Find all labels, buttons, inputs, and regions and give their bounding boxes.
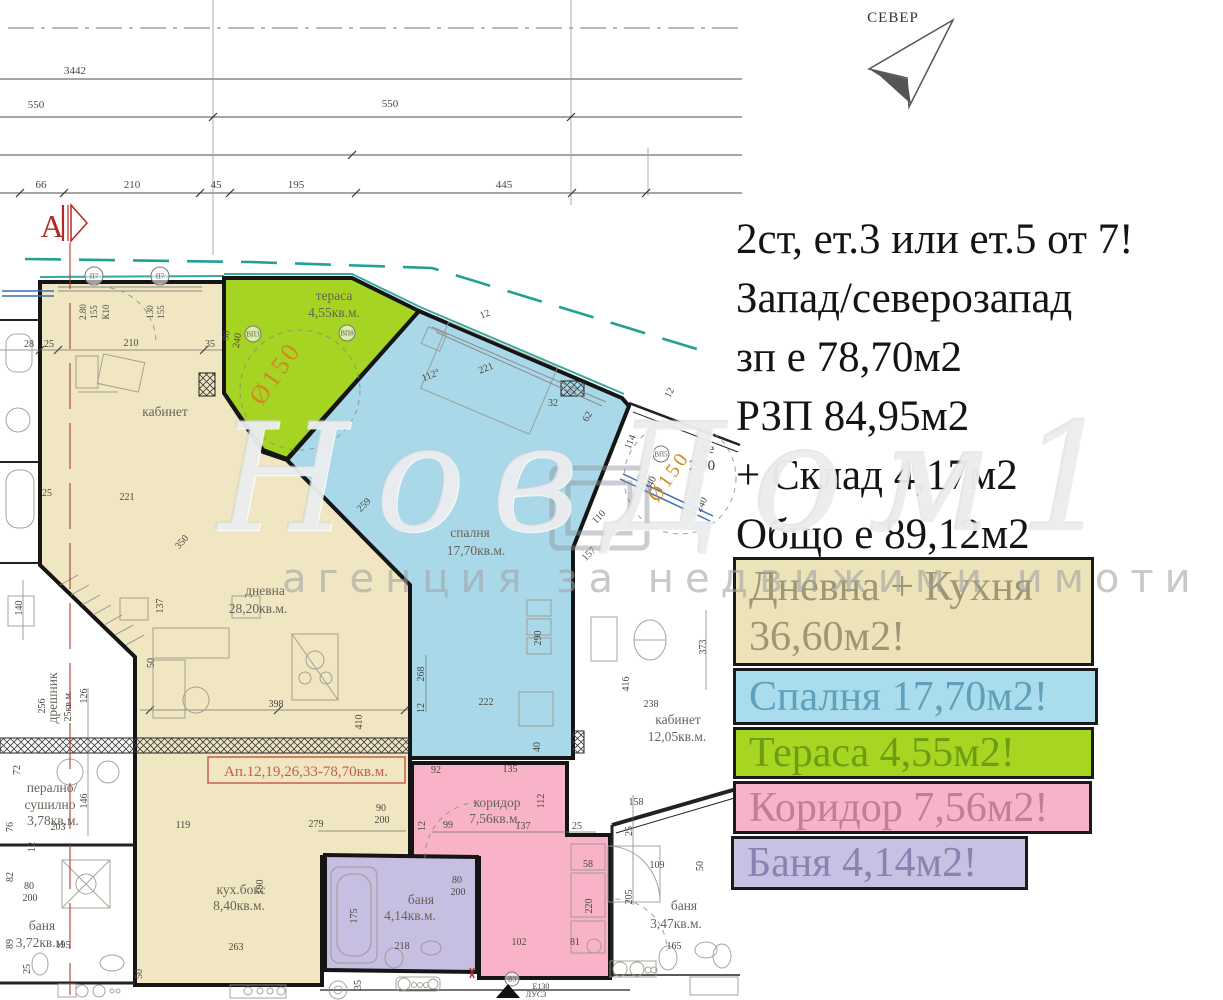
dimension-label: 76 <box>5 822 16 832</box>
section-marker <box>63 205 87 241</box>
hatched-wall <box>572 731 584 753</box>
info-line: Запад/северозапад <box>736 269 1133 328</box>
dimension-label: 119 <box>176 820 191 831</box>
dimension-label: 416 <box>621 677 632 692</box>
dimension-label: 25 <box>624 826 635 836</box>
listing-info: 2ст, ет.3 или ет.5 от 7!Запад/северозапа… <box>736 210 1133 564</box>
dimension-label: 200 <box>451 887 466 898</box>
dimension-label: 165 <box>667 941 682 952</box>
dimension-label: 445 <box>496 179 513 191</box>
circled-marker-label: ВП8 <box>340 330 354 338</box>
dimension-label: 112 <box>536 794 547 809</box>
circled-marker-label: П7 <box>156 273 165 281</box>
dimension-label: 155 <box>156 305 166 319</box>
dimension-label: 25кв.м. <box>63 691 74 722</box>
north-label: СЕВЕР <box>867 10 919 26</box>
room-label: кух.бокс <box>216 882 265 897</box>
info-line: РЗП 84,95м2 <box>736 387 1133 446</box>
dimension-label: 114 <box>623 433 639 451</box>
dimension-label: 109 <box>650 860 665 871</box>
legend-box-living-kitchen: Дневна + Кухня36,60м2! <box>733 557 1094 666</box>
circled-marker-label: П7 <box>90 273 99 281</box>
dimension-label: 2.80 <box>78 304 88 320</box>
dimension-label: 137 <box>155 599 166 614</box>
north-arrow <box>869 20 953 107</box>
dimension-label: 290 <box>533 631 544 646</box>
dimension-label: 210 <box>124 338 139 349</box>
dimension-label: 222 <box>479 697 494 708</box>
circled-marker-label: ВП3 <box>246 331 260 339</box>
info-line: + Склад 4,17м2 <box>736 446 1133 505</box>
dimension-label: 12 <box>663 386 677 400</box>
legend-label: 36,60м2! <box>736 612 1091 662</box>
apartment-id-label: Ап.12,19,26,33-78,70кв.м. <box>224 764 388 780</box>
dimension-label: 80 <box>24 881 34 892</box>
dimension-label: 66 <box>36 179 48 191</box>
section-marker-letter: А <box>40 208 63 244</box>
dimension-label: 130 <box>145 305 155 319</box>
dimension-label: 90 <box>376 803 386 814</box>
dimension-label: 90 <box>220 330 233 342</box>
dimension-label: 3442 <box>64 65 86 77</box>
dimension-label: 550 <box>382 98 399 110</box>
room-label: 3,78кв.м. <box>27 813 79 828</box>
legend-box-bath: Баня 4,14м2! <box>731 836 1028 890</box>
legend-label: Дневна + Кухня <box>736 562 1091 612</box>
dimension-label: 25 <box>42 488 52 499</box>
dimension-label: 155 <box>89 305 99 319</box>
room-label: 28,20кв.м. <box>229 601 288 616</box>
info-line: 2ст, ет.3 или ет.5 от 7! <box>736 210 1133 269</box>
room-label: 3,47кв.м. <box>650 916 702 931</box>
dimension-label: К10 <box>101 304 111 320</box>
room-label: сушилно <box>25 797 76 812</box>
room-label: тераса <box>316 288 353 303</box>
dimension-label: 81 <box>570 937 580 948</box>
legend-box-corridor: Коридор 7,56м2! <box>733 781 1092 834</box>
room-label: баня <box>671 898 697 913</box>
dimension-label: 195 <box>288 179 305 191</box>
dimension-label: 158 <box>629 797 644 808</box>
dimension-label: 50 <box>146 658 157 668</box>
hatched-wall <box>561 381 584 396</box>
dimension-label: 50 <box>695 861 706 871</box>
dimension-label: 25 <box>572 821 582 832</box>
dimension-label: 35 <box>205 339 215 350</box>
legend-label: Спалня 17,70м2! <box>736 672 1095 722</box>
legend-box-bedroom: Спалня 17,70м2! <box>733 668 1098 725</box>
dimension-label: 200 <box>375 815 390 826</box>
legend-label: Баня 4,14м2! <box>734 838 1025 888</box>
room-label: кабинет <box>655 712 701 727</box>
room-label: кабинет <box>142 404 188 419</box>
legend-box-terrace: Тераса 4,55м2! <box>733 727 1094 779</box>
room-label: 4,14кв.м. <box>384 908 436 923</box>
info-line: зп е 78,70м2 <box>736 328 1133 387</box>
dimension-label: 373 <box>698 640 709 655</box>
room-label: баня <box>408 892 434 907</box>
dimension-label: 72 <box>12 765 23 775</box>
dimension-label: 140 <box>14 601 25 616</box>
dimension-label: 238 <box>644 699 659 710</box>
dimension-label: 102 <box>512 937 527 948</box>
dimension-label: 12 <box>416 703 427 713</box>
dimension-label: 268 <box>416 667 427 682</box>
dimension-label: 410 <box>354 715 365 730</box>
dimension-label: 221 <box>120 492 135 503</box>
dimension-label: 12 <box>478 308 491 322</box>
hatched-wall <box>199 373 215 396</box>
dimension-label: 126 <box>79 689 90 704</box>
room-label: 12,05кв.м. <box>648 729 707 744</box>
dimension-label: 175 <box>349 909 360 924</box>
dimension-label: 40 <box>532 742 543 752</box>
dimension-label: 58 <box>583 859 593 870</box>
room-label: 4,55кв.м. <box>308 305 360 320</box>
dimension-label: 50 <box>134 969 145 979</box>
dimension-label: 25 <box>44 339 54 350</box>
dimension-label: 45 <box>211 179 223 191</box>
room-label: спалня <box>450 525 490 540</box>
room-label: дневна <box>245 583 285 598</box>
note-triangle <box>496 984 520 998</box>
dimension-label: 110 <box>590 508 608 526</box>
dimension-label: 210 <box>124 179 141 191</box>
dimension-label: 550 <box>28 99 45 111</box>
circled-marker-label: ВП5 <box>654 451 668 459</box>
dimension-label: 135 <box>503 764 518 775</box>
dimension-label: 99 <box>443 820 453 831</box>
dimension-label: 12 <box>27 842 38 852</box>
dimension-label: 398 <box>269 699 284 710</box>
room-label: баня <box>29 918 55 933</box>
dimension-label: 32 <box>548 398 558 409</box>
room-label: 3,72кв.м <box>16 935 65 950</box>
room-label: дрешник <box>45 672 60 723</box>
hatched-wall <box>0 738 409 753</box>
note-label: ЛУС3 <box>526 990 546 999</box>
listing-floorplan-image: 3442550550662104519544528252103525221140… <box>0 0 1223 1000</box>
dimension-label: 12 <box>417 821 428 831</box>
legend-label: Тераса 4,55м2! <box>736 728 1091 778</box>
dimension-label: 279 <box>309 819 324 830</box>
dimension-label: 89 <box>5 939 16 949</box>
room-label: 8,40кв.м. <box>213 898 265 913</box>
room-label: 17,70кв.м. <box>447 543 506 558</box>
dimension-label: 28 <box>24 339 34 350</box>
dimension-label: те <box>702 442 714 457</box>
dimension-label: 35 <box>353 980 364 990</box>
room-label: 7,56кв.м. <box>469 811 521 826</box>
dimension-label: 25 <box>22 964 33 974</box>
dimension-label: 80 <box>452 875 462 886</box>
info-line: Общо е 89,12м2 <box>736 505 1133 564</box>
dimension-label: 205 <box>624 890 635 905</box>
legend-label: Коридор 7,56м2! <box>736 783 1089 833</box>
dimension-label: 146 <box>79 794 90 809</box>
dimension-label: 220 <box>584 899 595 914</box>
dimension-grid <box>0 0 742 255</box>
dimension-label: 200 <box>23 893 38 904</box>
dimension-label: 92 <box>431 765 441 776</box>
dimension-label: 82 <box>5 872 16 882</box>
dimension-label: 218 <box>395 941 410 952</box>
circled-marker-label: В3 <box>508 976 517 984</box>
room-label: коридор <box>474 795 521 810</box>
dimension-label: 263 <box>229 942 244 953</box>
